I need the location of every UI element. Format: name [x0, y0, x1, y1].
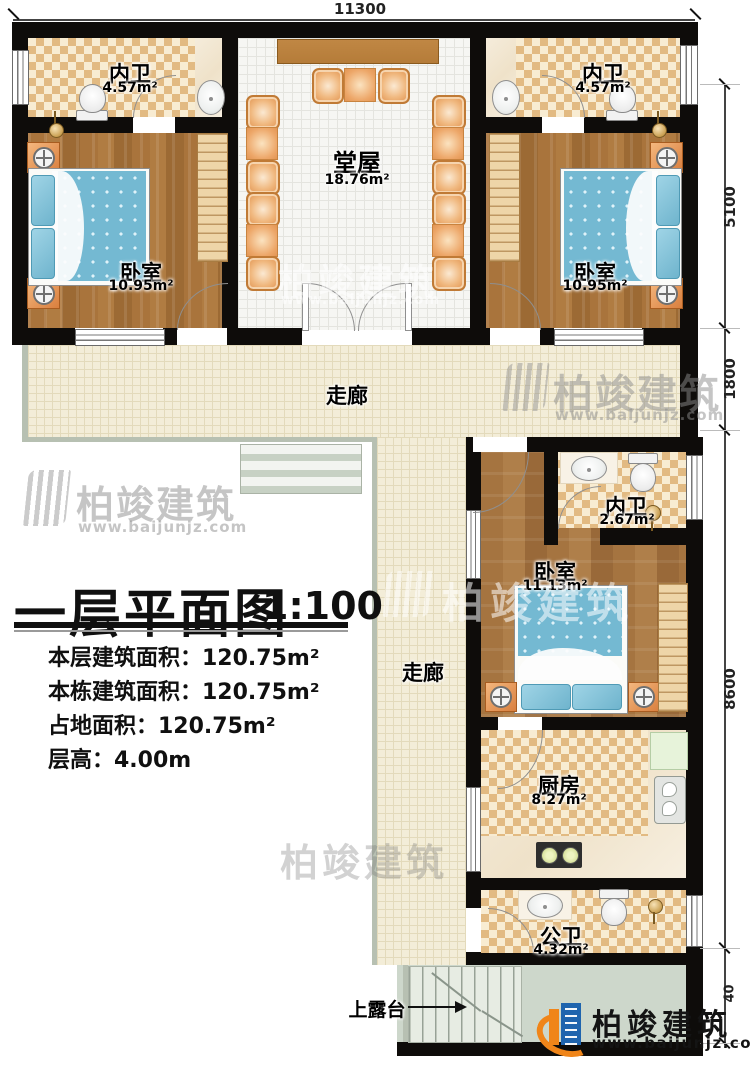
extension-line [700, 84, 740, 85]
kitchen-sink-icon [654, 776, 686, 824]
sink-basin [662, 782, 677, 797]
wall [227, 328, 302, 345]
logo-building-icon [561, 1003, 581, 1045]
title-underline [14, 622, 348, 628]
wall [466, 577, 481, 787]
wall [12, 22, 28, 50]
tea-table [432, 224, 464, 257]
sink-icon [197, 80, 225, 115]
dimension-right: 5100 [721, 167, 739, 247]
pillow [656, 228, 680, 279]
window [686, 455, 703, 520]
room-area: 4.32m² [528, 942, 594, 958]
room-label: 上露台 [346, 995, 408, 1022]
wall [163, 328, 177, 345]
window [75, 329, 165, 346]
tea-table [344, 68, 376, 102]
chair [246, 160, 280, 195]
floor-plan: 内卫 4.57m² 内卫 4.57m² 堂屋 18.76m² 卧室 10.95m… [0, 0, 750, 1066]
wall [544, 452, 558, 528]
wall [686, 437, 703, 455]
dimension-right: 1800 [721, 339, 739, 419]
page-title: 一层平面图 [14, 572, 289, 647]
floor-drain-stem [54, 111, 56, 124]
floor-drain-stem [657, 111, 659, 124]
wall [544, 528, 558, 545]
info-land-area: 占地面积：120.75m² [48, 708, 275, 740]
corridor-edge [372, 441, 377, 965]
chair [246, 192, 280, 227]
entry-steps [240, 444, 362, 494]
extension-line [700, 948, 740, 949]
wall [12, 22, 698, 38]
wall [412, 328, 490, 345]
room-area: 11.13m² [514, 578, 596, 594]
tea-table [432, 127, 464, 160]
room-label: 走廊 [398, 657, 448, 687]
wall [175, 117, 222, 133]
window [680, 45, 698, 105]
stove-icon [536, 842, 582, 868]
window [466, 510, 481, 579]
wall [466, 437, 473, 452]
window [686, 895, 703, 947]
room-area: 18.76m² [324, 172, 390, 188]
room-area: 8.27m² [528, 792, 590, 808]
wall [12, 328, 75, 345]
room-label: 走廊 [320, 380, 374, 410]
chair [432, 192, 466, 227]
bed-cushion [521, 684, 571, 710]
chair [432, 95, 466, 130]
info-floor-area: 本层建筑面积：120.75m² [48, 640, 319, 672]
stair-arrow-head [455, 1001, 467, 1013]
room-area: 4.57m² [99, 80, 161, 96]
logo-tower [549, 1009, 559, 1045]
nightstand [628, 682, 660, 712]
tea-table [246, 127, 278, 160]
wall [466, 717, 498, 730]
door-leaf [405, 283, 412, 331]
extension-line [700, 328, 740, 329]
watermark-url: www.baijunjz.com [78, 518, 247, 536]
altar-table [277, 39, 439, 64]
wall [686, 520, 703, 895]
sink-icon [571, 456, 607, 481]
floor-corridor-vertical [377, 437, 466, 965]
room-area: 10.95m² [102, 278, 180, 294]
corridor-edge [22, 437, 377, 442]
chair [378, 68, 410, 104]
wall [466, 878, 703, 890]
logo-website: www.baijunjz.com [592, 1034, 750, 1052]
watermark-brand: 柏竣建筑 [76, 474, 236, 529]
window [554, 329, 644, 346]
wall [486, 117, 542, 133]
lamp-icon [656, 147, 678, 169]
wall [680, 22, 698, 45]
floor-drain-icon [652, 123, 667, 138]
burner [562, 847, 579, 864]
wall [527, 437, 703, 452]
sink-icon [527, 893, 563, 918]
tea-table [246, 224, 278, 257]
floor-drain-icon [648, 899, 663, 914]
wall [542, 717, 703, 730]
chair [246, 95, 280, 130]
sink-icon [492, 80, 520, 115]
toilet-icon [630, 463, 656, 492]
wall [12, 103, 28, 345]
lamp-icon [33, 147, 55, 169]
pillow [31, 175, 55, 226]
watermark-logo-icon [23, 470, 71, 526]
wardrobe [197, 133, 228, 262]
extension-line [700, 430, 740, 431]
room-area: 4.57m² [572, 80, 634, 96]
burner [541, 847, 558, 864]
bed-mattress [518, 588, 622, 656]
title-underline-shadow [14, 630, 348, 632]
dimension-line [13, 19, 695, 21]
sink-basin [662, 801, 677, 816]
window [466, 787, 481, 872]
room-area: 10.95m² [556, 278, 634, 294]
pillow [31, 228, 55, 279]
bed-cushion [572, 684, 622, 710]
info-floor-height: 层高：4.00m [48, 742, 191, 774]
wardrobe [658, 583, 688, 712]
dimension-top: 11300 [300, 0, 420, 18]
corridor-edge [22, 345, 28, 442]
chair [432, 256, 466, 291]
wall [470, 22, 486, 328]
floor-drain-stem [653, 912, 655, 924]
floor-drain-icon [49, 123, 64, 138]
nightstand [485, 682, 517, 712]
chair [246, 256, 280, 291]
lamp-icon [633, 686, 655, 708]
wall [540, 328, 554, 345]
chair [312, 68, 344, 104]
dimension-right: 8600 [721, 649, 739, 729]
room-area: 2.67m² [594, 512, 660, 528]
chair [432, 160, 466, 195]
wall [642, 328, 698, 345]
window [12, 50, 29, 105]
fridge [650, 732, 688, 770]
lamp-icon [490, 686, 512, 708]
pillow [656, 175, 680, 226]
toilet-icon [601, 898, 627, 926]
info-building-area: 本栋建筑面积：120.75m² [48, 674, 319, 706]
wardrobe [489, 133, 520, 262]
stair-direction-arrow [408, 1006, 456, 1008]
